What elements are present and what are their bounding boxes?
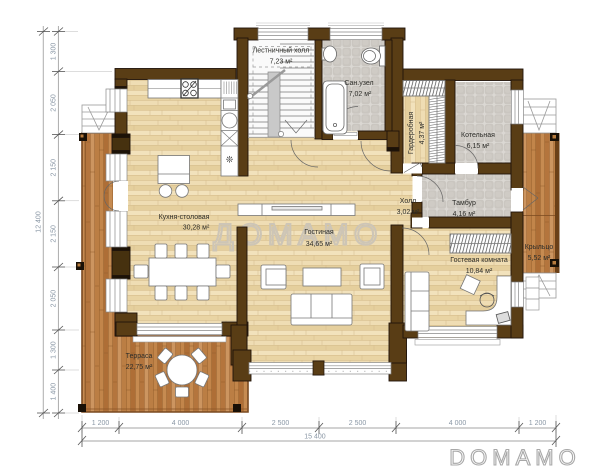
svg-text:2 500: 2 500 bbox=[272, 420, 290, 427]
svg-text:34,65 м²: 34,65 м² bbox=[306, 241, 333, 248]
svg-text:4,37 м²: 4,37 м² bbox=[419, 121, 426, 144]
svg-text:Кухня-столовая: Кухня-столовая bbox=[159, 214, 210, 221]
svg-text:2 050: 2 050 bbox=[51, 94, 58, 112]
svg-text:4 000: 4 000 bbox=[172, 420, 190, 427]
svg-text:Крыльцо: Крыльцо bbox=[525, 244, 554, 251]
svg-text:2 050: 2 050 bbox=[51, 290, 58, 308]
svg-text:4 000: 4 000 bbox=[449, 420, 467, 427]
svg-text:15 400: 15 400 bbox=[304, 434, 326, 441]
svg-text:Сан.узел: Сан.узел bbox=[344, 80, 373, 87]
svg-text:7,23 м²: 7,23 м² bbox=[270, 58, 293, 65]
svg-text:6,15 м²: 6,15 м² bbox=[467, 143, 490, 150]
svg-text:1 200: 1 200 bbox=[92, 420, 110, 427]
svg-text:Лестничный холл: Лестничный холл bbox=[253, 46, 310, 54]
svg-text:1 300: 1 300 bbox=[51, 43, 58, 61]
svg-text:5,52 м²: 5,52 м² bbox=[528, 255, 551, 262]
svg-text:Гостевая комната: Гостевая комната bbox=[450, 257, 508, 264]
svg-text:2 500: 2 500 bbox=[349, 420, 367, 427]
svg-text:12 400: 12 400 bbox=[36, 211, 43, 233]
svg-text:1 400: 1 400 bbox=[51, 383, 58, 401]
svg-text:DOMAMO: DOMAMO bbox=[449, 445, 580, 470]
svg-text:Гостиная: Гостиная bbox=[304, 229, 334, 236]
svg-text:❊: ❊ bbox=[226, 155, 234, 165]
svg-text:22,75 м²: 22,75 м² bbox=[126, 364, 153, 371]
svg-text:Котельная: Котельная bbox=[461, 132, 495, 139]
svg-text:7,02 м²: 7,02 м² bbox=[349, 91, 372, 98]
svg-text:Тамбур: Тамбур bbox=[452, 199, 476, 207]
svg-text:30,28 м²: 30,28 м² bbox=[183, 225, 210, 232]
svg-text:2 150: 2 150 bbox=[51, 159, 58, 177]
svg-text:3,02 м²: 3,02 м² bbox=[397, 209, 420, 216]
svg-text:1 300: 1 300 bbox=[51, 341, 58, 359]
svg-text:4,16 м²: 4,16 м² bbox=[453, 211, 476, 218]
svg-text:2 150: 2 150 bbox=[51, 225, 58, 243]
svg-text:Терраса: Терраса bbox=[126, 353, 153, 360]
svg-text:Холл: Холл bbox=[400, 198, 417, 205]
svg-text:Гардеробная: Гардеробная bbox=[407, 112, 415, 155]
svg-text:1 200: 1 200 bbox=[529, 420, 547, 427]
svg-text:10,84 м²: 10,84 м² bbox=[466, 268, 493, 275]
